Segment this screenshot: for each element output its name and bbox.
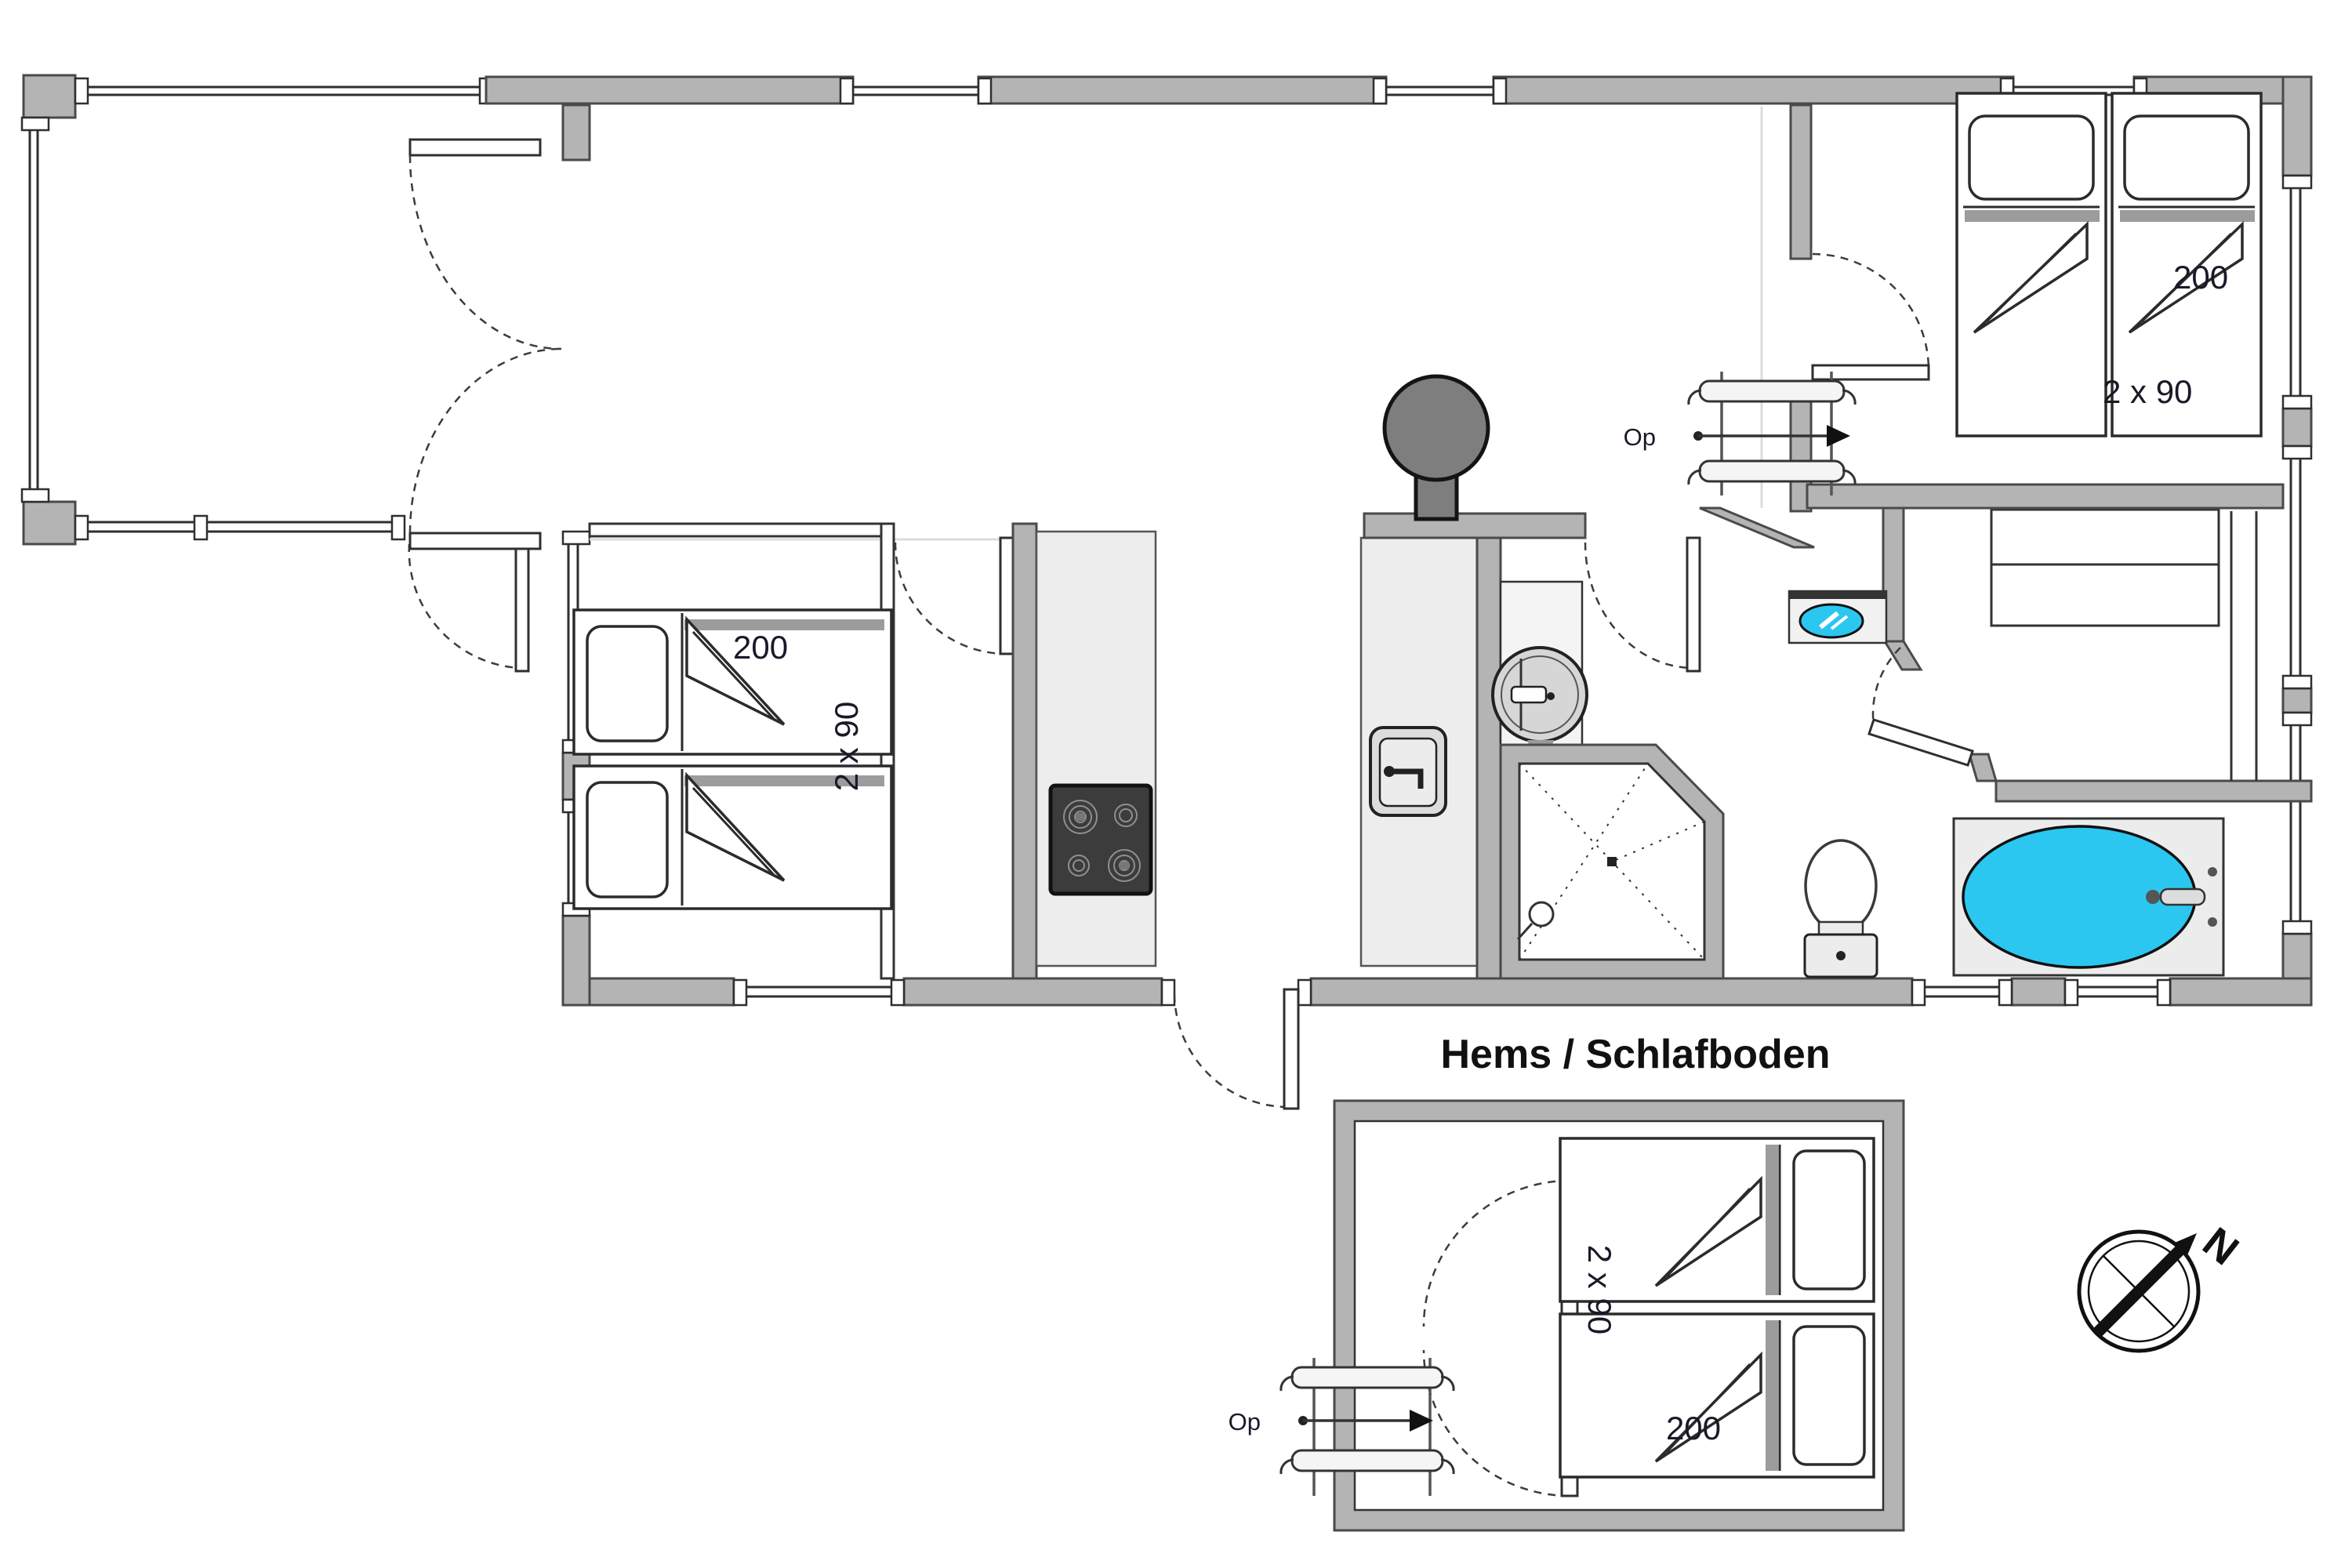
bed-length-label: 200: [1666, 1410, 1721, 1446]
bathtub-icon: [1954, 818, 2223, 975]
bathroom-top-wall: [1364, 514, 1585, 538]
loft-title: Hems / Schlafboden: [1441, 1032, 1831, 1077]
pillow: [1794, 1151, 1864, 1289]
north-label: N: [2194, 1218, 2248, 1274]
bathroom-door: [1585, 538, 1700, 671]
pillow: [2125, 116, 2249, 199]
pillow: [587, 782, 667, 897]
terrace-post: [24, 502, 75, 544]
washbasin-icon: [1789, 591, 1886, 643]
diagonal-wall: [1969, 754, 1996, 781]
bed-width-label: 2 x 90: [1581, 1245, 1618, 1334]
kitchen: [1013, 524, 1477, 978]
entrance-door: [1162, 980, 1311, 1109]
pillow: [1969, 116, 2093, 199]
bedroom-right-bottom-wall: [1807, 485, 2283, 508]
bedroom-right-door: [1813, 254, 1929, 379]
shower-icon: [1501, 745, 1723, 978]
terrace-gate: [409, 541, 528, 671]
pillow: [587, 626, 667, 741]
wardrobe-icon: [1991, 510, 2256, 781]
cooktop-icon: [1051, 786, 1151, 894]
french-doors: [410, 140, 561, 549]
wood-stove-icon: [1385, 376, 1488, 519]
bed-width-label: 2 x 90: [2103, 373, 2192, 410]
bed-width-label: 2 x 90: [828, 702, 865, 791]
compass-icon: N: [2079, 1218, 2247, 1351]
terrace-post: [24, 75, 75, 118]
shower-head: [1530, 902, 1553, 926]
floor-plan: 200 2 x 90: [0, 0, 2352, 1568]
hall-room: [1789, 508, 2311, 801]
bedroom-left-top-wall: [590, 524, 891, 536]
diagonal-door: [1869, 648, 1973, 765]
pillow: [1794, 1327, 1864, 1465]
stairs-up-label: Op: [1624, 423, 1656, 451]
hall-bottom-wall: [1996, 781, 2311, 801]
diagonal-wall: [1885, 641, 1921, 670]
terrace: [22, 75, 528, 671]
tub-faucet: [2161, 889, 2205, 905]
bedroom-left-door: [895, 538, 1013, 654]
bedroom-right-left-wall: [1791, 105, 1811, 259]
up-arrow-icon: [1827, 425, 1850, 447]
bed-length-label: 200: [733, 629, 788, 666]
loft-ladder-upper: Op: [1624, 372, 1855, 495]
toilet-icon: [1805, 840, 1877, 977]
bedroom-left: 200 2 x 90: [574, 524, 1013, 978]
diagonal-wall: [1700, 508, 1814, 547]
stairs-up-label: Op: [1229, 1408, 1261, 1436]
kitchen-wall: [1013, 524, 1036, 978]
north-needle: [2098, 1249, 2181, 1332]
kitchen-sink-icon: [1370, 728, 1446, 815]
bathroom-left-wall: [1477, 538, 1501, 978]
bed-length-label: 200: [2173, 259, 2228, 296]
kitchen-counter: [1036, 532, 1156, 966]
